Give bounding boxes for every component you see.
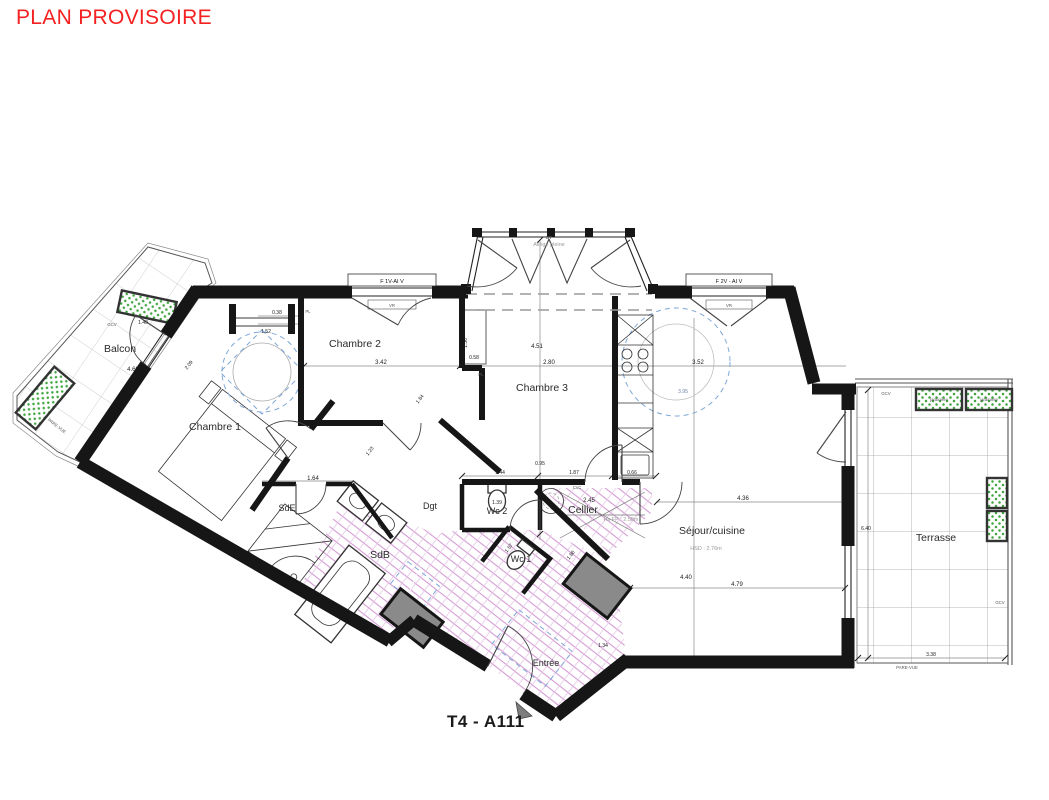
room-label-cellier: Cellier — [568, 504, 598, 516]
room-label-wc1: Wc 1 — [511, 554, 532, 564]
planter-label: jardinière — [929, 397, 948, 402]
room-label-terrasse: Terrasse — [916, 532, 956, 544]
dim-ch1-door: 2.09 — [184, 360, 195, 372]
dim-corridor-b: 1.23 — [365, 446, 376, 458]
bay-window: BT Allège pleine — [461, 228, 658, 294]
sejour-height-note: HSD : 2.76m — [690, 546, 722, 552]
dim-cellier-width: 2.45 — [583, 498, 595, 504]
dim-wc2-chain-a: 1.44 — [495, 470, 505, 476]
pl-label-ch1: PL — [305, 309, 311, 314]
dim-ch2-side-b: 0.58 — [469, 355, 479, 361]
room-label-entree: Entrée — [533, 658, 560, 668]
gcv-terrasse-right: GCV — [995, 600, 1004, 605]
plan-code: T4 - A111 — [447, 712, 525, 731]
pare-vue-terrasse: PARE-VUE — [896, 665, 918, 670]
room-label-chambre2: Chambre 2 — [329, 338, 381, 350]
dim-sejour-b: 4.40 — [680, 575, 692, 581]
dim-entree-a: 1.34 — [598, 643, 608, 649]
room-label-sejour: Séjour/cuisine — [679, 525, 745, 537]
dim-sejour-d: 3.52 — [692, 360, 704, 366]
room-label-chambre1: Chambre 1 — [189, 421, 241, 433]
window-f2-vr: VR — [726, 303, 732, 308]
dim-sejour-a: 4.36 — [737, 496, 749, 502]
window-f1-vr: VR — [389, 303, 395, 308]
dim-balcon-length: 4.60 — [127, 367, 139, 373]
window-f1-label: F 1V-AI V — [380, 279, 404, 285]
balcon-area — [13, 243, 216, 468]
dim-balcon-width: 1.40 — [138, 320, 148, 326]
dim-wc2-width: 1.39 — [492, 500, 502, 506]
dim-ch3-length: 4.51 — [531, 344, 543, 350]
gcv-terrasse-top: GCV — [881, 391, 890, 396]
dim-corridor-a: 1.84 — [415, 394, 426, 406]
room-label-sdb: SdB — [370, 549, 390, 561]
csc-label: CsC — [573, 485, 581, 490]
room-label-chambre3: Chambre 3 — [516, 382, 568, 394]
dim-terrasse-width: 3.38 — [926, 652, 936, 658]
dim-wc2-chain-b: 1.87 — [569, 470, 579, 476]
gcv-balcon: GCV — [107, 322, 116, 327]
dim-ch1-placard-a: 0.38 — [272, 310, 282, 316]
bay-tag: BT — [546, 235, 552, 240]
window-f2-label: F 2V - AI V — [716, 279, 743, 285]
window-f1: F 1V-AI V VR — [348, 274, 436, 325]
room-label-dgt: Dgt — [423, 501, 438, 511]
dim-terrasse-length: 6.40 — [861, 526, 871, 532]
planter-label: jardinière — [979, 397, 998, 402]
room-label-sde: SdE — [278, 503, 295, 513]
floor-plan-svg: jardinière jardinière — [0, 0, 1049, 800]
room-label-wc2: Wc 2 — [487, 506, 508, 516]
dim-ch1-placard-b: 1.52 — [261, 329, 271, 335]
dim-ch2-side-a: 1.56 — [463, 338, 469, 348]
dim-ch3-width: 2.80 — [543, 360, 555, 366]
dim-wc2-top: 0.95 — [535, 461, 545, 467]
terrasse-area: jardinière jardinière — [855, 379, 1013, 665]
plan-code-group: T4 - A111 — [447, 702, 532, 731]
dim-ch2-width: 3.42 — [375, 360, 387, 366]
dim-sejour-e: 3.95 — [678, 389, 688, 395]
dim-sde-width: 1.64 — [307, 476, 319, 482]
floor-plan-page: PLAN PROVISOIRE — [0, 0, 1049, 800]
dim-sejour-c: 4.79 — [731, 582, 743, 588]
window-f2: F 2V - AI V VR — [686, 274, 772, 326]
dim-kitchen-depth: 0.66 — [627, 470, 637, 476]
pl-label-ch2: PL — [478, 372, 484, 377]
cellier-height-note: Hs FP : 2.58m — [603, 517, 638, 523]
bay-note: Allège pleine — [533, 242, 565, 248]
room-label-balcon: Balcon — [104, 343, 136, 355]
